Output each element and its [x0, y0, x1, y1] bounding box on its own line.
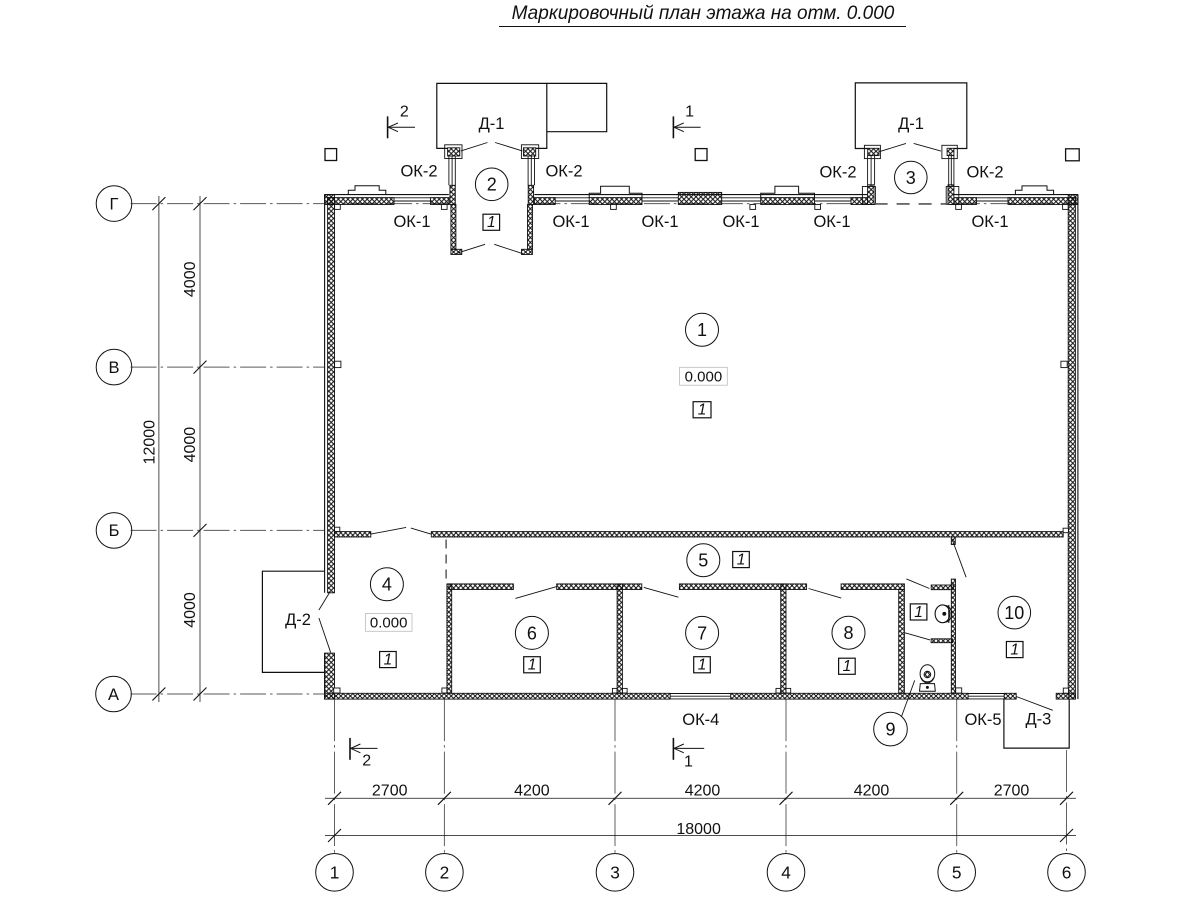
svg-text:4000: 4000	[182, 592, 199, 628]
svg-text:Д-3: Д-3	[1025, 711, 1051, 729]
svg-text:1: 1	[698, 657, 707, 674]
svg-text:1: 1	[487, 214, 496, 231]
svg-text:Д-1: Д-1	[479, 115, 505, 133]
svg-text:1: 1	[697, 320, 707, 340]
svg-text:4200: 4200	[854, 782, 890, 799]
svg-text:ОК-1: ОК-1	[813, 213, 850, 231]
svg-text:1: 1	[914, 604, 923, 621]
svg-text:1: 1	[330, 862, 340, 882]
svg-text:ОК-4: ОК-4	[682, 711, 719, 729]
svg-text:ОК-2: ОК-2	[966, 164, 1003, 182]
svg-text:ОК-1: ОК-1	[552, 213, 589, 231]
svg-text:ОК-5: ОК-5	[964, 711, 1001, 729]
svg-text:0.000: 0.000	[370, 615, 408, 632]
svg-text:4000: 4000	[182, 261, 199, 297]
svg-text:4200: 4200	[685, 782, 721, 799]
svg-text:ОК-1: ОК-1	[971, 213, 1008, 231]
svg-text:ОК-2: ОК-2	[819, 164, 856, 182]
svg-text:2: 2	[487, 175, 497, 195]
svg-text:ОК-2: ОК-2	[400, 163, 437, 181]
svg-text:7: 7	[697, 623, 707, 643]
svg-text:2: 2	[362, 753, 371, 770]
svg-text:2700: 2700	[372, 782, 408, 799]
svg-text:2700: 2700	[994, 782, 1030, 799]
svg-text:1: 1	[737, 551, 746, 568]
svg-text:ОК-1: ОК-1	[722, 213, 759, 231]
svg-text:ОК-1: ОК-1	[393, 213, 430, 231]
svg-text:Г: Г	[110, 195, 119, 213]
svg-text:6: 6	[527, 623, 537, 643]
svg-text:ОК-1: ОК-1	[641, 213, 678, 231]
svg-text:5: 5	[698, 551, 708, 571]
svg-text:2: 2	[400, 103, 409, 120]
svg-text:18000: 18000	[676, 821, 721, 838]
svg-text:1: 1	[1010, 641, 1019, 658]
svg-text:0.000: 0.000	[685, 369, 723, 386]
svg-text:5: 5	[952, 862, 962, 882]
svg-text:3: 3	[610, 862, 620, 882]
svg-text:12000: 12000	[141, 420, 158, 465]
svg-text:1: 1	[843, 658, 852, 675]
svg-text:1: 1	[384, 651, 393, 668]
svg-text:3: 3	[906, 168, 916, 188]
svg-text:4: 4	[382, 575, 392, 595]
svg-text:4000: 4000	[182, 427, 199, 463]
svg-text:6: 6	[1062, 862, 1072, 882]
svg-text:10: 10	[1004, 603, 1024, 623]
svg-text:Д-2: Д-2	[285, 611, 311, 629]
svg-text:В: В	[108, 359, 119, 377]
svg-text:4200: 4200	[514, 782, 550, 799]
svg-text:9: 9	[885, 720, 895, 740]
svg-text:ОК-2: ОК-2	[545, 163, 582, 181]
svg-text:1: 1	[528, 657, 537, 674]
svg-text:Маркировочный план этажа на от: Маркировочный план этажа на отм. 0.000	[512, 3, 895, 24]
svg-text:А: А	[108, 686, 119, 704]
svg-text:8: 8	[843, 623, 853, 643]
svg-text:Б: Б	[109, 522, 120, 540]
svg-text:1: 1	[698, 402, 707, 419]
svg-text:2: 2	[440, 862, 450, 882]
svg-text:4: 4	[781, 862, 791, 882]
svg-text:1: 1	[685, 103, 694, 120]
svg-text:1: 1	[684, 754, 693, 771]
svg-text:Д-1: Д-1	[898, 115, 924, 133]
